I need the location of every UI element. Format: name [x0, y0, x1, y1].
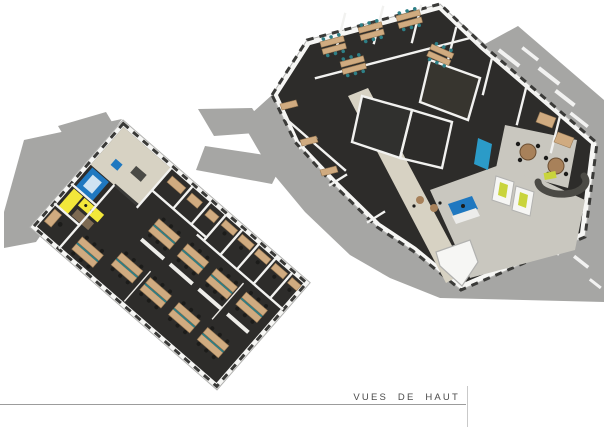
architectural-sheet: VUES DE HAUT: [0, 0, 604, 427]
right-plan-building: [272, 4, 597, 290]
caption-title: VUES DE HAUT: [353, 392, 460, 403]
right-floor-plan: [242, 4, 604, 302]
floor-plans-figure: VUES DE HAUT: [0, 0, 604, 427]
caption-block: VUES DE HAUT: [0, 386, 468, 427]
